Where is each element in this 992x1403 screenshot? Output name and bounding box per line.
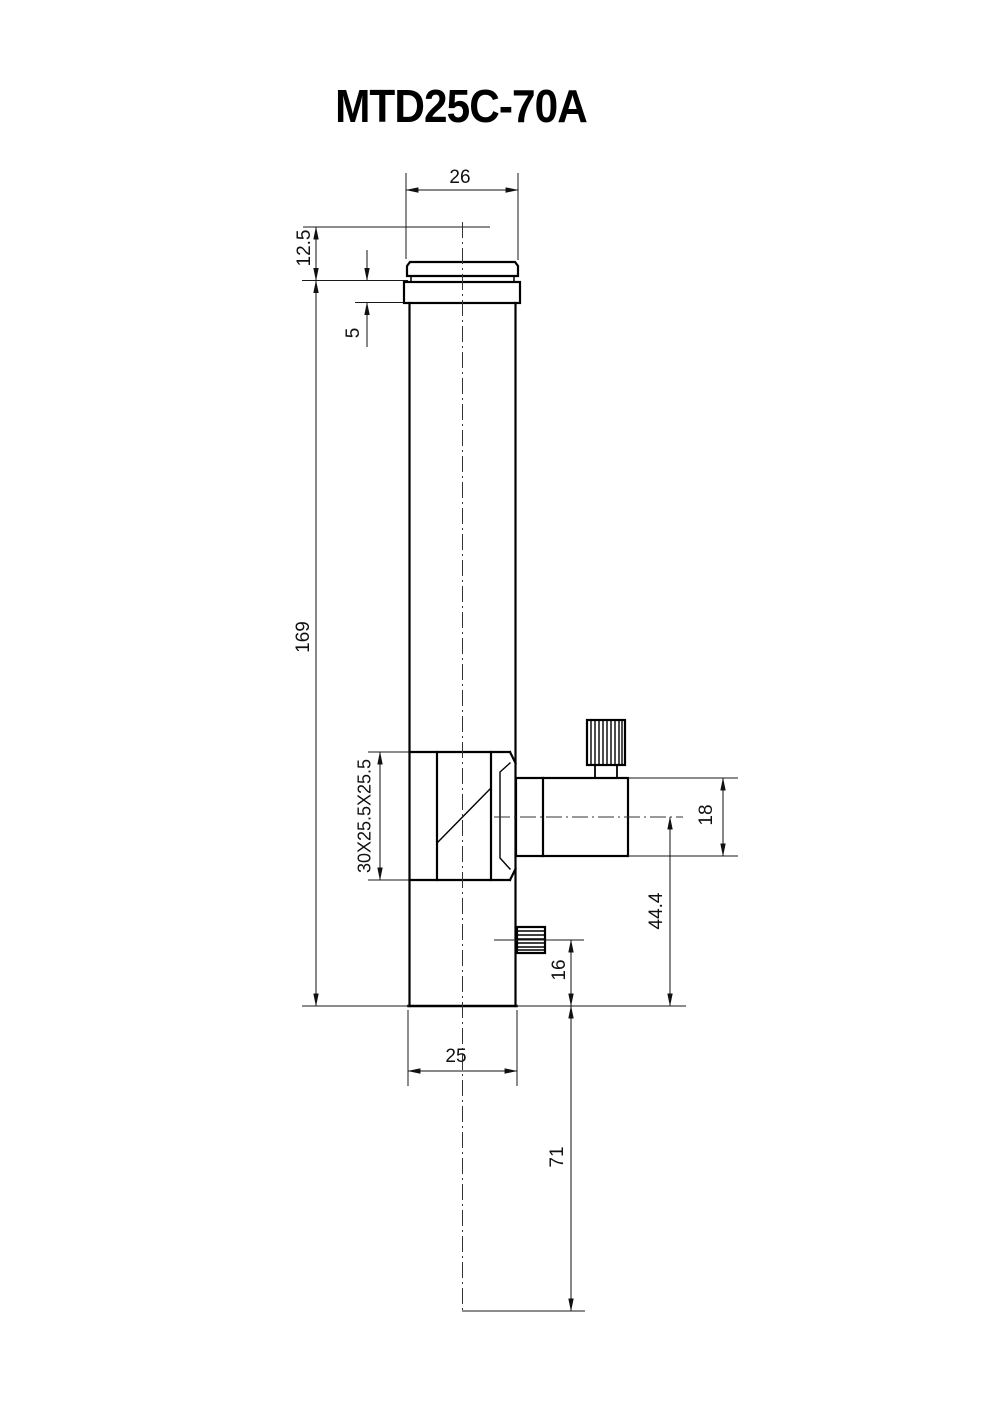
thumbscrew-knurl-stripes <box>591 721 622 764</box>
mirror-diagonal-line <box>437 788 491 843</box>
technical-drawing-canvas: MTD25C-70A 26 12.5 5 169 30X25.5X25.5 18… <box>0 0 992 1403</box>
dim-label-knob-height: 16 <box>549 959 571 980</box>
dim-label-port-diameter: 18 <box>696 804 718 825</box>
part-details <box>437 721 622 950</box>
drawing-title: MTD25C-70A <box>335 79 587 133</box>
dim-label-cap-offset: 12.5 <box>294 230 316 267</box>
dim-label-body-width: 25 <box>445 1046 466 1068</box>
dim-label-top-width: 26 <box>449 167 470 189</box>
dim-label-body-length: 169 <box>293 621 315 653</box>
boss-inner-profile <box>500 763 510 869</box>
dim-label-band-height: 5 <box>343 328 365 339</box>
dimension-lines <box>316 190 723 1311</box>
dim-label-base-extension: 71 <box>547 1146 569 1167</box>
dim-label-port-axis-height: 44.4 <box>646 893 668 930</box>
thumbscrew-stem <box>595 765 617 778</box>
part-outline <box>404 262 628 1006</box>
drawing-linework <box>0 0 992 1403</box>
dim-label-prism-block: 30X25.5X25.5 <box>355 759 376 873</box>
centerlines <box>463 222 684 1311</box>
